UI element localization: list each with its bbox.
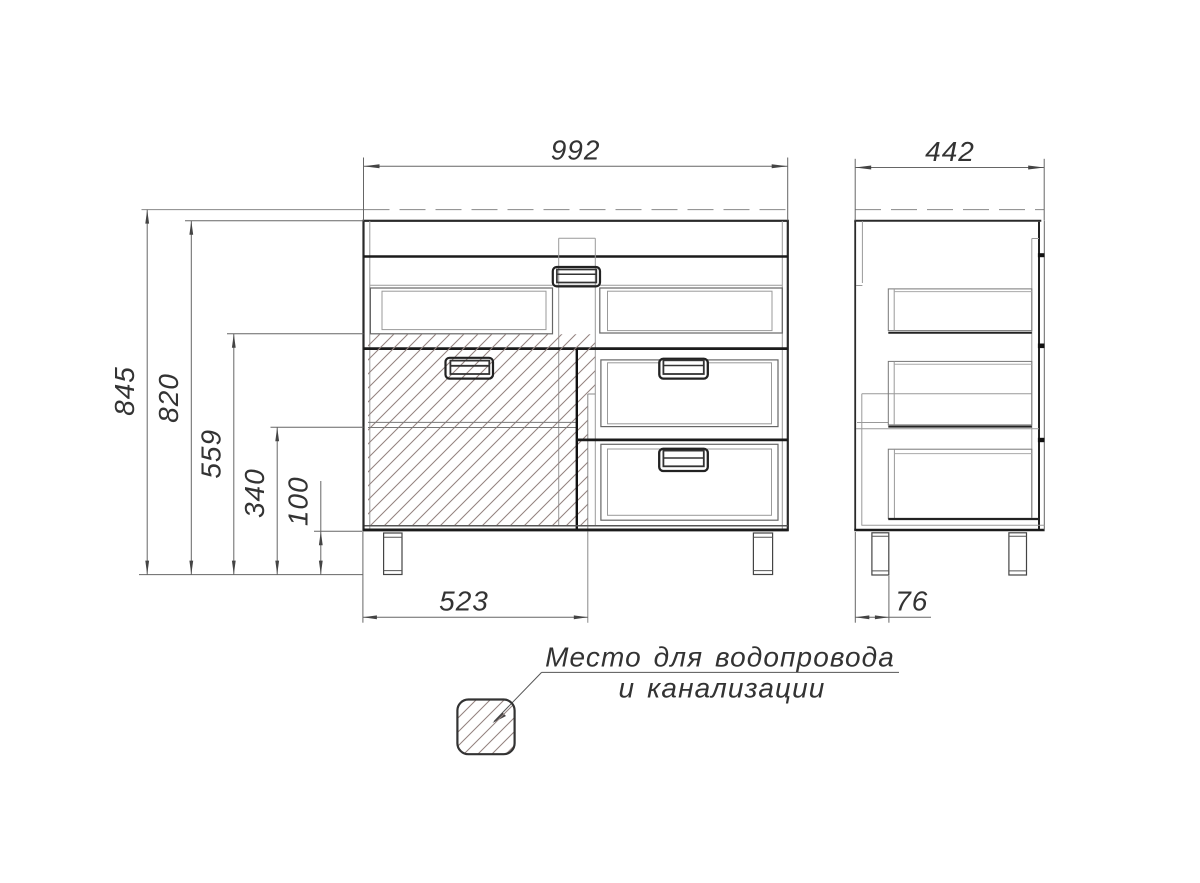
svg-text:523: 523 <box>439 586 489 617</box>
svg-text:340: 340 <box>239 468 270 518</box>
svg-text:820: 820 <box>153 373 184 423</box>
svg-text:442: 442 <box>925 136 975 167</box>
svg-text:559: 559 <box>196 429 227 479</box>
svg-text:992: 992 <box>551 135 601 166</box>
svg-text:100: 100 <box>283 476 314 526</box>
svg-text:76: 76 <box>895 586 928 617</box>
svg-text:845: 845 <box>109 366 140 416</box>
svg-text:Место для водопровода: Место для водопровода <box>545 642 895 673</box>
svg-text:и канализации: и канализации <box>619 673 826 704</box>
